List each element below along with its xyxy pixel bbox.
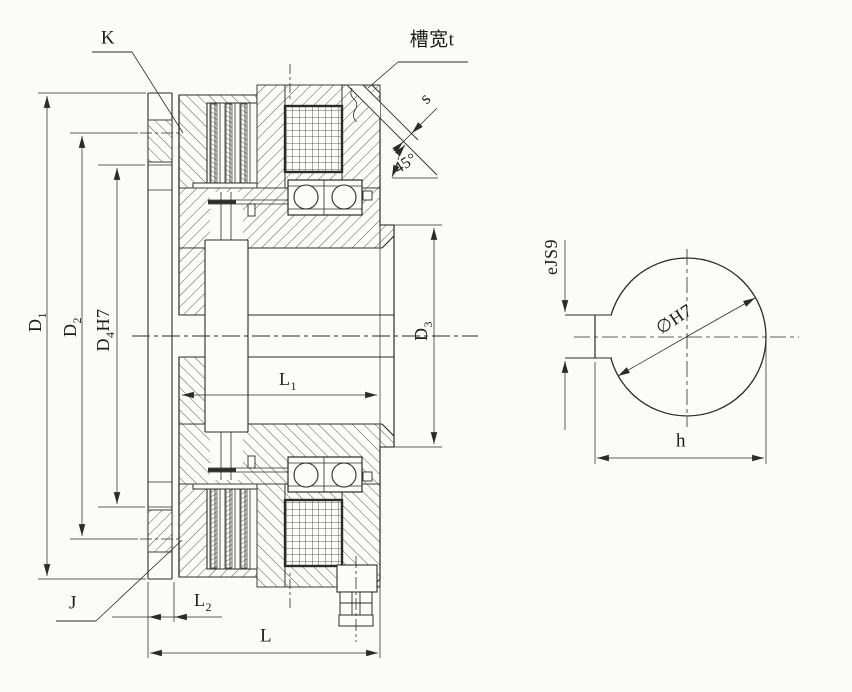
dim-label-d1: D1 bbox=[26, 312, 48, 332]
ref-label-k: K bbox=[101, 29, 115, 48]
dim-label-d3: D3 bbox=[412, 321, 434, 341]
counterbore-cavity bbox=[248, 248, 394, 315]
rotor-pole-left bbox=[257, 85, 285, 193]
bearing-ball bbox=[294, 185, 318, 209]
dim-label-ejs9: eJS9 bbox=[542, 239, 560, 275]
driven-sleeve bbox=[205, 240, 248, 336]
technical-drawing-page: D1 D2 D4H7 D3 L1 L2 L K J 槽宽t s 45° eJS9… bbox=[0, 0, 852, 692]
bearing-ball bbox=[332, 185, 356, 209]
dim-label-l2: L2 bbox=[194, 591, 212, 613]
dim-label-l: L bbox=[260, 627, 272, 646]
bearing-seal bbox=[363, 191, 372, 200]
dim-label-d2: D2 bbox=[61, 317, 83, 337]
dim-label-h: h bbox=[676, 432, 686, 451]
excitation-coil bbox=[285, 106, 342, 172]
friction-disc-pack bbox=[210, 103, 250, 185]
ref-label-j: J bbox=[69, 594, 77, 613]
hub-left-wall bbox=[179, 248, 205, 315]
ball-bearing bbox=[288, 180, 372, 215]
dim-label-d4h7: D4H7 bbox=[94, 309, 116, 352]
dim-label-l1: L1 bbox=[279, 370, 297, 392]
rotor-above-coil bbox=[285, 85, 342, 106]
label-slot-width: 槽宽t bbox=[410, 31, 455, 50]
